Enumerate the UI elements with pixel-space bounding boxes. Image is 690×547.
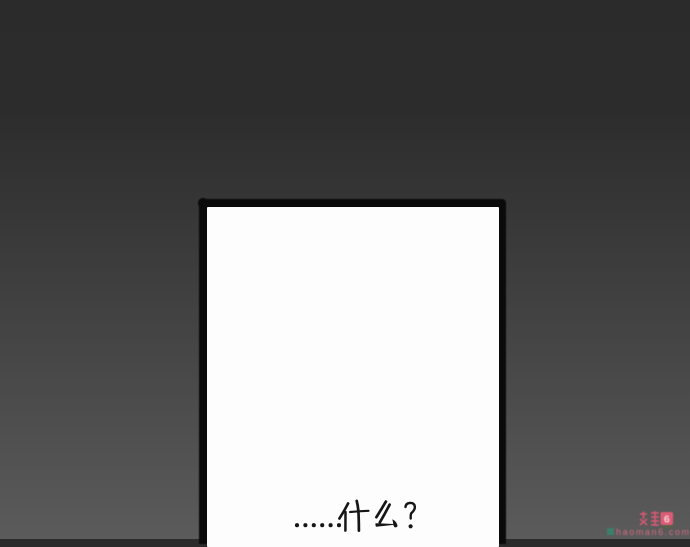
svg-text:6: 6 [664, 514, 670, 526]
